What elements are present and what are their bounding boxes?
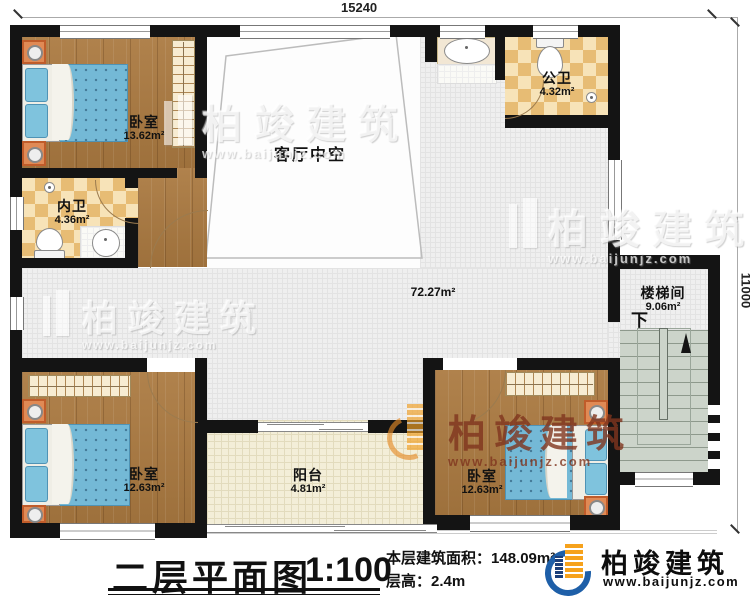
window [708,423,720,433]
bed-pillow [585,463,607,495]
sink-mat [437,64,497,84]
bed-pillow [25,428,48,464]
wall [22,258,138,268]
window [708,459,720,469]
room-area: 4.81m² [291,483,326,496]
wall [620,255,720,269]
balcony-label: 阳台 4.81m² [291,467,326,496]
wall [22,168,177,178]
shower-fixture [586,92,597,103]
floor-height-value: 2.4m [431,573,465,590]
hallway-area-label: 72.27m² [411,286,456,300]
room-name: 公卫 [540,70,575,86]
window [60,25,150,39]
dimension-top-value: 15240 [341,0,377,15]
window [635,472,693,487]
room-name: 内卫 [55,198,90,214]
room-name: 卧室 [124,114,165,130]
bed-pillow [25,466,48,502]
floor-area-label: 本层建筑面积： [386,550,491,567]
brand-logo-building-icon [565,542,583,578]
window [440,25,485,39]
wall [10,330,22,538]
bed-blanket [52,64,74,140]
wall [10,25,22,197]
wall [390,25,440,37]
room-name: 阳台 [291,467,326,483]
window [60,523,155,540]
wall [22,358,147,372]
room-area: 13.62m² [124,130,165,143]
room-area: 12.63m² [462,484,503,497]
ceiling-lamp [44,182,55,193]
window [470,515,570,532]
wall [10,523,60,538]
floor-area-info: 本层建筑面积：148.09m² [386,547,555,568]
window [533,25,578,39]
brand-logo-building-icon [555,556,563,578]
nightstand [22,505,46,523]
room-area: 4.32m² [540,86,575,99]
floor-height-info: 层高：2.4m [386,570,465,591]
wall [207,420,258,433]
dimension-tick [730,524,740,534]
bedroom3-label: 卧室 12.63m² [124,466,165,495]
window [240,25,390,39]
watermark-logo-icon [40,290,74,342]
bathroom-public-label: 公卫 4.32m² [540,70,575,99]
bathroom-private-label: 内卫 4.36m² [55,198,90,227]
floor-height-label: 层高： [386,573,431,590]
room-name: 卧室 [462,468,503,484]
window [708,441,720,451]
brand-logo: 柏竣建筑 www.baijunjz.com [543,538,743,598]
stairwell-label: 楼梯间 9.06m² [641,285,686,314]
wall [505,115,620,128]
bed-pillow [25,104,48,138]
room-name: 楼梯间 [641,285,686,301]
wall [517,358,620,370]
wall [155,523,207,538]
room-area: 12.63m² [124,482,165,495]
wall [125,218,138,258]
wall [608,362,620,530]
nightstand [22,40,46,64]
room-area: 72.27m² [411,286,456,300]
closet-rod [30,386,129,387]
brand-website: www.baijunjz.com [603,574,739,589]
nightstand [22,141,46,166]
dimension-tick [13,9,23,19]
wall [608,25,620,160]
closet-rod [507,384,593,385]
window [10,197,24,230]
window [10,297,24,330]
watermark-logo-icon [160,95,198,151]
bed-pillow [585,429,607,461]
watermark-logo-icon [387,402,439,462]
bed-blanket [545,425,567,498]
floor-plan-canvas: 15240 11000 [0,0,750,600]
hallway-floor [22,268,608,358]
wall [608,472,635,485]
wall [495,37,505,80]
sink [444,38,490,64]
stairs-direction-arrow [681,333,691,353]
balcony-sliding-door [258,422,368,432]
balcony-railing [207,524,437,533]
stairs-center-rail [659,328,668,420]
room-name: 卧室 [124,466,165,482]
bedroom1-label: 卧室 13.62m² [124,114,165,143]
wall [708,255,720,472]
wall [608,240,620,322]
wall [150,25,240,37]
wall [425,37,437,62]
nightstand [22,399,46,423]
wall [10,230,22,297]
dimension-line-top [20,17,737,18]
sink [92,229,120,257]
nightstand [584,400,608,424]
bedroom2-label: 卧室 12.63m² [462,468,503,497]
room-area: 4.36m² [55,214,90,227]
stairs-down-label: 下 [631,311,649,331]
bed-pillow [25,68,48,102]
wall [485,25,533,37]
room-name: 客厅中空 [274,147,346,165]
plan-scale: 1:100 [305,551,392,590]
window [608,160,622,240]
plan-title: 二层平面图 [112,549,312,600]
dimension-right-value: 11000 [739,261,750,321]
stairwell-door-opening [608,322,620,362]
watermark-logo-icon [505,198,543,254]
dimension-tick [730,17,740,27]
bed-blanket [52,424,74,504]
title-underline [108,588,380,591]
wall [693,472,720,485]
living-void-label: 客厅中空 [274,147,346,165]
window [708,405,720,415]
down-text: 下 [631,311,649,331]
title-underline [108,594,380,595]
